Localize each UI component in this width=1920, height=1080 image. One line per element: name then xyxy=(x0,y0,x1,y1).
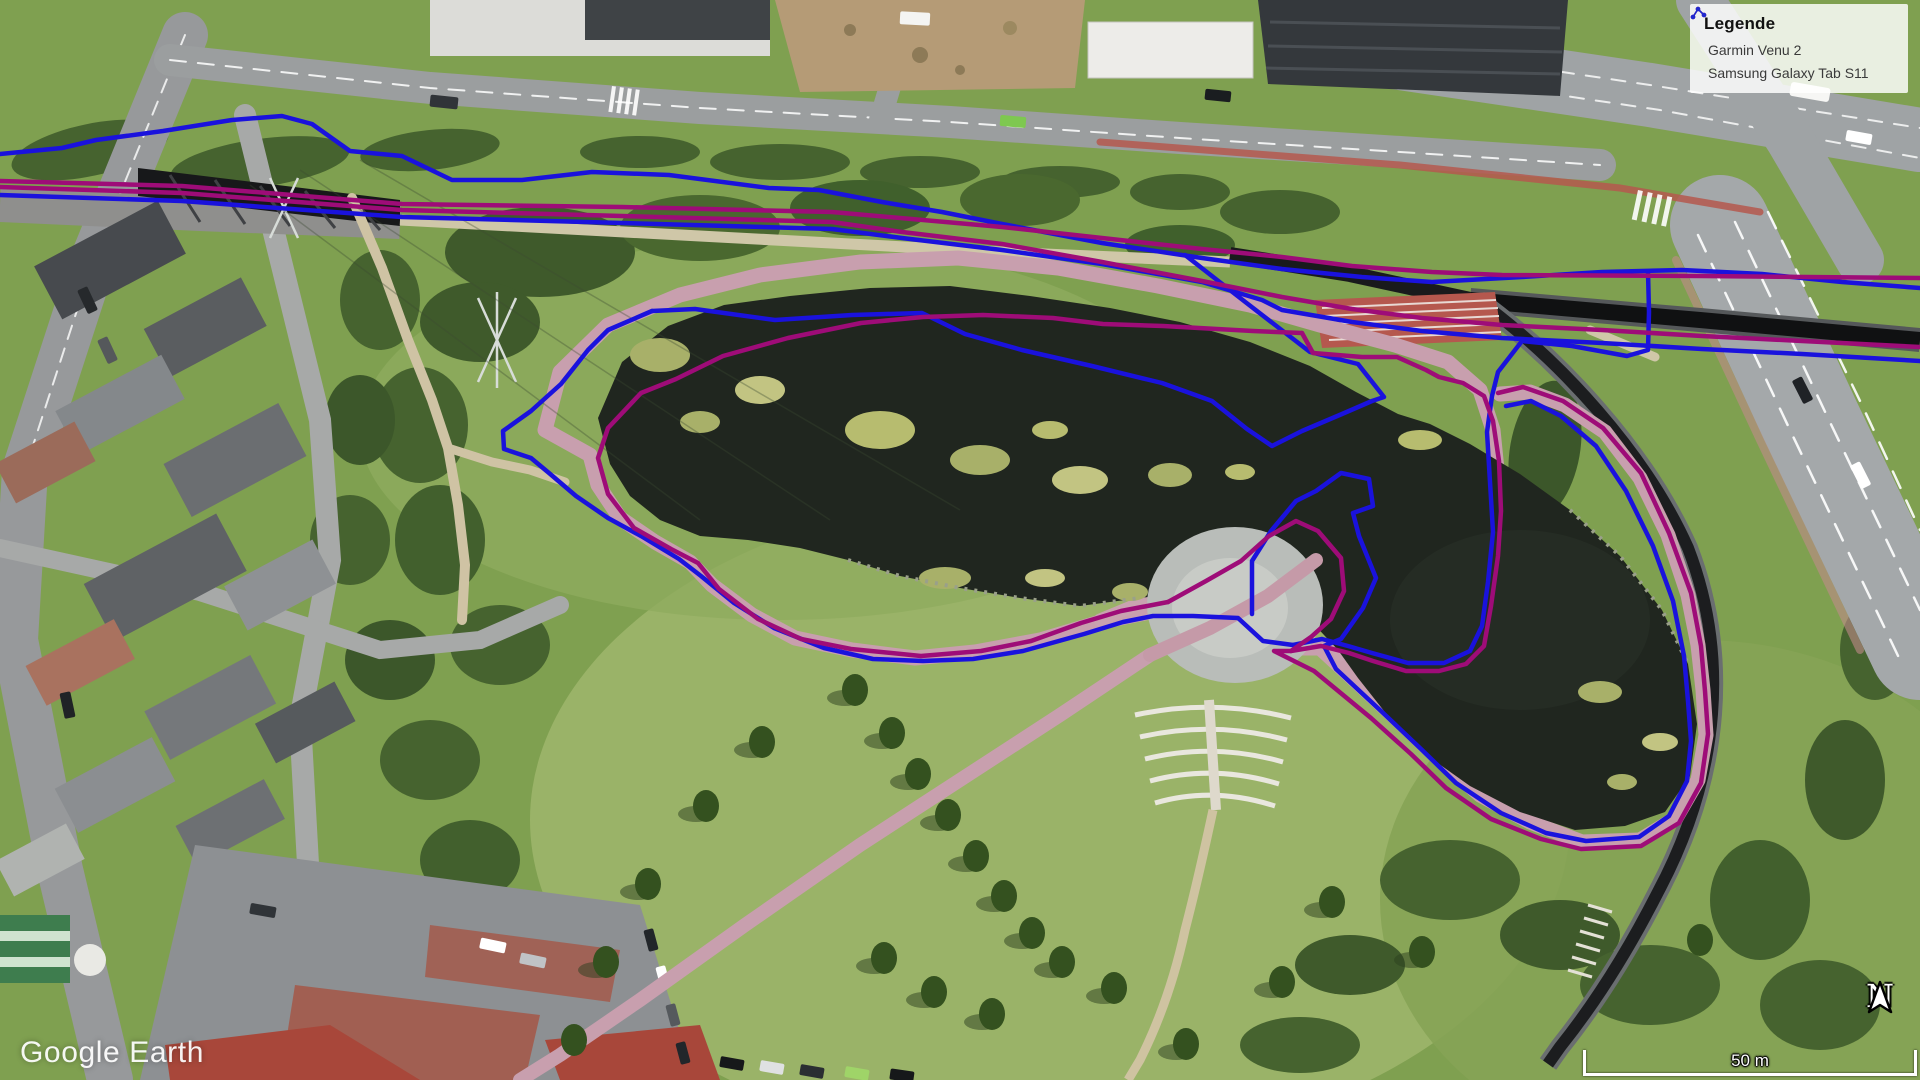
legend-panel: Legende Garmin Venu 2 Samsung Galaxy Tab… xyxy=(1690,4,1908,93)
north-arrow-icon xyxy=(1862,980,1898,1016)
scale-bar: 50 m xyxy=(1583,1050,1917,1076)
legend-label: Samsung Galaxy Tab S11 xyxy=(1708,65,1869,81)
legend-title: Legende xyxy=(1704,14,1896,34)
legend-label: Garmin Venu 2 xyxy=(1708,42,1801,58)
legend-item-samsung-galaxy-tab-s11: Samsung Galaxy Tab S11 xyxy=(1708,65,1896,81)
google-earth-viewport: Legende Garmin Venu 2 Samsung Galaxy Tab… xyxy=(0,0,1920,1080)
scale-bar-label: 50 m xyxy=(1731,1052,1769,1073)
track-route-icon xyxy=(1690,4,1708,22)
satellite-map[interactable] xyxy=(0,0,1920,1080)
google-earth-watermark: Google Earth xyxy=(20,1036,204,1070)
circular-plaza xyxy=(1147,527,1323,683)
legend-item-garmin-venu-2: Garmin Venu 2 xyxy=(1708,42,1896,58)
north-compass: N xyxy=(1862,980,1898,1012)
